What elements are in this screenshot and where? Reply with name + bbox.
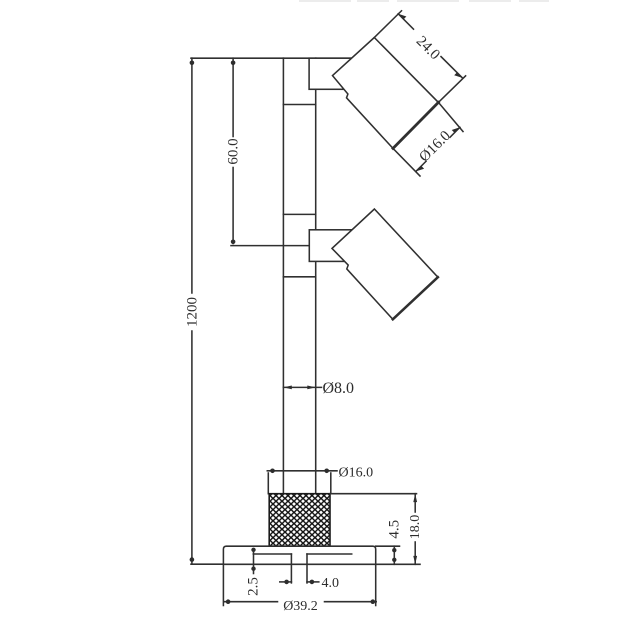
svg-text:24.0: 24.0	[413, 33, 443, 63]
svg-text:Ø8.0: Ø8.0	[323, 380, 355, 397]
svg-text:Ø16.0: Ø16.0	[339, 465, 374, 480]
svg-text:Ø16.0: Ø16.0	[416, 128, 454, 166]
svg-text:2.5: 2.5	[245, 577, 261, 596]
svg-text:18.0: 18.0	[408, 515, 423, 540]
svg-text:60.0: 60.0	[226, 138, 242, 164]
svg-text:1200: 1200	[185, 297, 201, 327]
svg-text:4.0: 4.0	[322, 576, 340, 591]
svg-text:4.5: 4.5	[387, 520, 403, 539]
svg-text:Ø39.2: Ø39.2	[283, 599, 318, 614]
